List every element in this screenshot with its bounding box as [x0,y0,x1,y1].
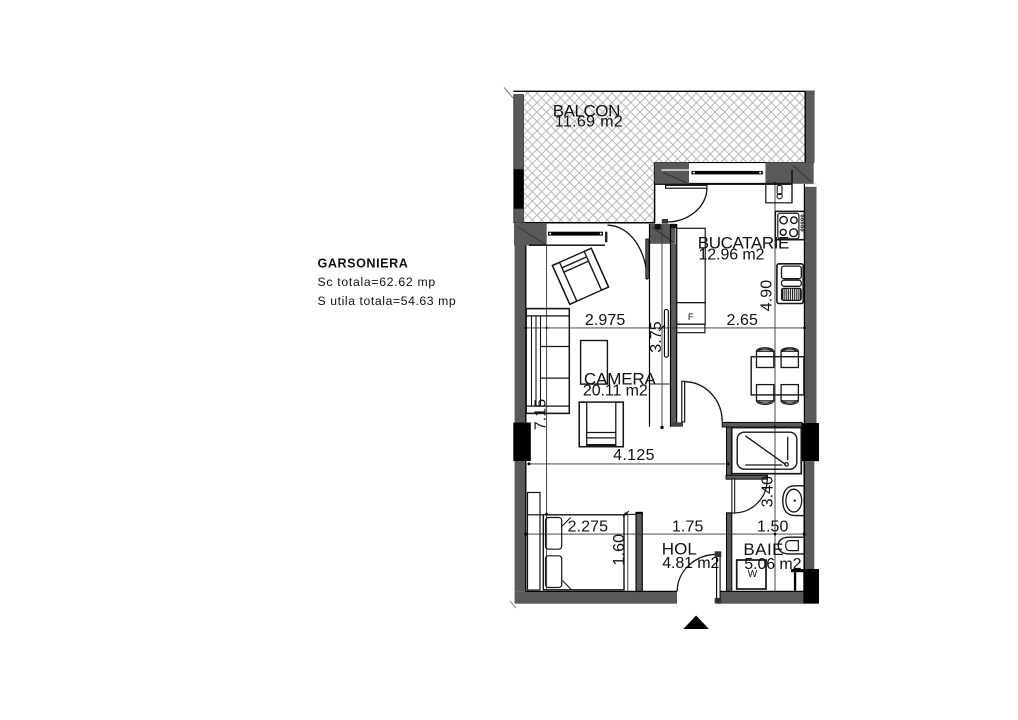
svg-text:W: W [748,569,758,580]
svg-text:Sc totala=62.62 mp: Sc totala=62.62 mp [318,275,436,289]
svg-text:7.15: 7.15 [533,399,550,431]
svg-text:1.60: 1.60 [611,534,628,566]
svg-text:3.75: 3.75 [648,321,665,353]
svg-text:GARSONIERA: GARSONIERA [318,257,409,271]
svg-text:3.40: 3.40 [760,476,777,508]
svg-text:12.96 m2: 12.96 m2 [699,246,765,263]
svg-text:4.125: 4.125 [613,447,655,464]
svg-text:4.90: 4.90 [759,280,776,312]
svg-text:2.65: 2.65 [727,312,759,329]
svg-text:1.50: 1.50 [757,518,789,535]
svg-text:2.275: 2.275 [568,518,609,535]
svg-text:2.975: 2.975 [585,312,626,329]
svg-text:F: F [688,312,694,323]
svg-text:1.75: 1.75 [672,518,704,535]
svg-text:20.11 m2: 20.11 m2 [583,383,648,400]
svg-text:11.69 m2: 11.69 m2 [555,114,623,131]
svg-text:4.81 m2: 4.81 m2 [662,555,719,572]
svg-text:S utila totala=54.63 mp: S utila totala=54.63 mp [318,294,457,308]
